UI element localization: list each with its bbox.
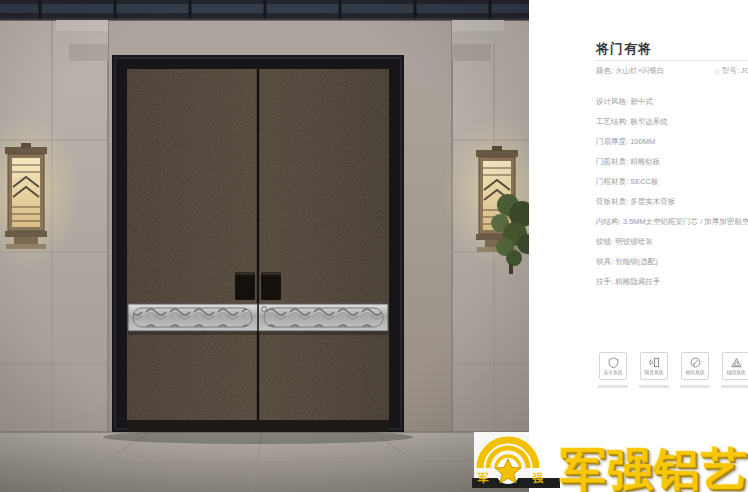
- model-label-group: ◇ 型号: JC: [714, 66, 748, 76]
- feature-safety: 安全系统: [598, 352, 628, 388]
- carving-icon: [690, 357, 701, 368]
- feature-caption: [680, 385, 710, 388]
- feature-stability: 稳固系统: [721, 352, 748, 388]
- feature-caption: [721, 385, 748, 388]
- feature-label: 雕刻系统: [686, 370, 705, 375]
- brand-name: 军强铝艺: [560, 447, 748, 492]
- spec-row-back-material: 背板材质: 多层实木背板: [596, 192, 748, 212]
- spec-row-craft-structure: 工艺结构: 极窄边系统: [596, 112, 748, 132]
- title-divider: [596, 60, 748, 61]
- emblem-char-left: 军: [477, 472, 489, 484]
- meta-row: 颜色: 火山红+闪银白 ◇ 型号: JC: [596, 66, 748, 76]
- feature-label: 隔音系统: [645, 370, 664, 375]
- brand-emblem: 军 强: [472, 426, 560, 492]
- feature-box: 安全系统: [599, 352, 627, 380]
- soundproof-icon: [649, 357, 660, 368]
- feature-box: 稳固系统: [722, 352, 748, 380]
- feature-box: 隔音系统: [640, 352, 668, 380]
- spec-row-hinge: 铰链: 明铰链暗装: [596, 232, 748, 252]
- feature-label: 稳固系统: [727, 370, 746, 375]
- spec-row-inner-structure: 内结构: 3.5MM太空铝框架门芯 / 加厚加密航空铝边框: [596, 212, 748, 232]
- spec-row-frame-material: 门框材质: SECC板: [596, 172, 748, 192]
- emblem-char-right: 强: [532, 472, 544, 484]
- brand-logo: 军 强 军强铝艺: [472, 426, 748, 492]
- spec-row-handle: 拉手: 精雕隐藏拉手: [596, 272, 748, 292]
- stability-icon: [731, 357, 742, 368]
- spec-panel: 将门有将 颜色: 火山红+闪银白 ◇ 型号: JC 设计风格: 新中式 工艺结构…: [529, 0, 748, 492]
- vignette: [0, 0, 529, 492]
- feature-caption: [598, 385, 628, 388]
- entrance-photo: [0, 0, 529, 492]
- spec-row-lock: 锁具: 智能锁(选配): [596, 252, 748, 272]
- color-label: 颜色: 火山红+闪银白: [596, 66, 665, 76]
- feature-soundproof: 隔音系统: [639, 352, 669, 388]
- feature-icons-row: 安全系统 隔音系统 雕刻系统: [598, 352, 748, 388]
- shield-icon: [608, 357, 619, 368]
- spec-list: 设计风格: 新中式 工艺结构: 极窄边系统 门扇厚度: 100MM 门面材质: …: [596, 92, 748, 292]
- feature-label: 安全系统: [604, 370, 623, 375]
- feature-box: 雕刻系统: [681, 352, 709, 380]
- spec-row-design-style: 设计风格: 新中式: [596, 92, 748, 112]
- feature-carving: 雕刻系统: [680, 352, 710, 388]
- model-diamond-icon: ◇: [714, 68, 719, 75]
- product-title: 将门有将: [596, 40, 652, 58]
- feature-caption: [639, 385, 669, 388]
- spec-row-surface-material: 门面材质: 精雕铝板: [596, 152, 748, 172]
- spec-row-leaf-thickness: 门扇厚度: 100MM: [596, 132, 748, 152]
- model-label: 型号: JC: [722, 66, 748, 76]
